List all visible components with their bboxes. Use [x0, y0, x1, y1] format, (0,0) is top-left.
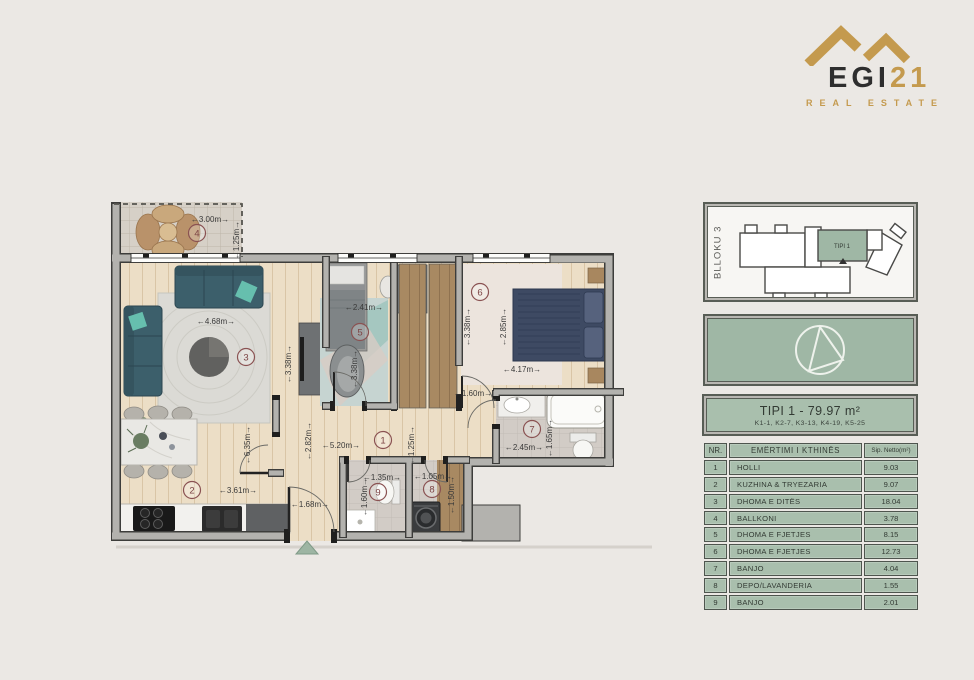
sofa-top: [175, 266, 263, 308]
row-nr: 9: [704, 595, 727, 610]
row-name: KUZHINA & TRYEZARIA: [729, 477, 862, 492]
dim-entry-w: ←1.68m→: [291, 500, 329, 509]
row-name: DHOMA E DITËS: [729, 494, 862, 509]
dim-hall-h: ←1.25m→: [407, 426, 416, 464]
floorplan-sheet: EGI21 REAL ESTATE: [0, 0, 974, 680]
dim-bath-w: ←2.45m→: [505, 443, 543, 452]
row-name: DEPO/LAVANDERIA: [729, 578, 862, 593]
dim-living-w: ←4.68m→: [197, 317, 235, 326]
room-area-table: NR. EMËRTIMI I KTHINËS Sip. Netto(m²) 1 …: [704, 443, 918, 612]
row-nr: 2: [704, 477, 727, 492]
table-row: 9 BANJO 2.01: [704, 595, 918, 610]
block-unit-label: TIPI 1: [834, 244, 851, 250]
type-title: TIPI 1 - 79.97 m²: [760, 404, 861, 418]
header-nr: NR.: [704, 443, 727, 458]
dim-wc9-h: ←1.60m→: [360, 478, 369, 516]
row-area: 3.78: [864, 511, 918, 526]
row-area: 4.04: [864, 561, 918, 576]
type-subtitle: K1-1, K2-7, K3-13, K4-19, K5-25: [755, 420, 866, 427]
row-nr: 8: [704, 578, 727, 593]
tv-console: [299, 323, 322, 395]
north-arrow-icon: [708, 319, 914, 382]
room-label-9: 9: [375, 487, 380, 498]
dim-kitchen-h: ←6.35m→: [243, 426, 252, 464]
window-room6: [473, 254, 550, 263]
room-label-1: 1: [380, 435, 385, 446]
dim-room5-w: ←2.41m→: [345, 303, 383, 312]
header-area: Sip. Netto(m²): [864, 443, 918, 458]
dim-room5-h: ←3.38m→: [350, 350, 359, 388]
room-label-8: 8: [429, 484, 434, 495]
dim-kitchen-w: ←3.61m→: [219, 486, 257, 495]
dim-bath-h: ←1.65m→: [545, 419, 554, 457]
table-row: 2 KUZHINA & TRYEZARIA 9.07: [704, 477, 918, 492]
bathtub: [547, 391, 609, 428]
dim-dep8-h: ←1.50m→: [447, 476, 456, 514]
table-header-row: NR. EMËRTIMI I KTHINËS Sip. Netto(m²): [704, 443, 918, 458]
cooktop: [133, 506, 175, 531]
row-area: 9.07: [864, 477, 918, 492]
table-row: 5 DHOMA E FJETJES 8.15: [704, 527, 918, 542]
kitchen-counter: [120, 504, 290, 533]
row-nr: 1: [704, 460, 727, 475]
row-nr: 3: [704, 494, 727, 509]
dim-room6-h-right: ←2.85m→: [499, 308, 508, 346]
block-outline-map: TIPI 1: [708, 207, 914, 298]
dim-balcony-w: ←3.00m→: [191, 215, 229, 224]
window-room5: [338, 254, 417, 263]
type-title-box: TIPI 1 - 79.97 m² K1-1, K2-7, K3-13, K4-…: [702, 394, 918, 436]
compass-box: [703, 314, 918, 386]
row-nr: 4: [704, 511, 727, 526]
nightstand: [588, 368, 606, 383]
room-label-3: 3: [243, 352, 248, 363]
block-inset-box: BLLOKU 3 TIPI 1: [703, 202, 918, 302]
double-bed: [513, 289, 605, 361]
row-nr: 5: [704, 527, 727, 542]
row-area: 18.04: [864, 494, 918, 509]
dim-hall-h2: ←2.82m→: [304, 422, 313, 460]
table-row: 3 DHOMA E DITËS 18.04: [704, 494, 918, 509]
room-label-2: 2: [189, 485, 194, 496]
row-area: 8.15: [864, 527, 918, 542]
nightstand: [588, 268, 606, 283]
table-row: 1 HOLLI 9.03: [704, 460, 918, 475]
windows: [131, 254, 550, 263]
header-name: EMËRTIMI I KTHINËS: [729, 443, 862, 458]
row-name: HOLLI: [729, 460, 862, 475]
row-area: 12.73: [864, 544, 918, 559]
row-name: BANJO: [729, 561, 862, 576]
dim-balcony-h: ←1.25m→: [232, 221, 241, 259]
dining-table: [121, 419, 197, 465]
laundry-8: [412, 502, 440, 533]
room-label-4: 4: [194, 228, 199, 239]
row-area: 2.01: [864, 595, 918, 610]
table-row: 7 BANJO 4.04: [704, 561, 918, 576]
row-nr: 6: [704, 544, 727, 559]
room-label-5: 5: [357, 327, 362, 338]
row-name: DHOMA E FJETJES: [729, 544, 862, 559]
table-row: 6 DHOMA E FJETJES 12.73: [704, 544, 918, 559]
dim-hall-w: ←5.20m→: [322, 441, 360, 450]
row-nr: 7: [704, 561, 727, 576]
row-area: 1.55: [864, 578, 918, 593]
row-name: BALLKONI: [729, 511, 862, 526]
row-name: BANJO: [729, 595, 862, 610]
room-label-7: 7: [529, 424, 534, 435]
table-row: 8 DEPO/LAVANDERIA 1.55: [704, 578, 918, 593]
dim-bath-entry: ←1.60m→: [454, 389, 492, 398]
dim-room6-h-left: ←3.38m→: [463, 308, 472, 346]
sofa-left: [124, 306, 162, 396]
window-living: [131, 254, 240, 263]
row-area: 9.03: [864, 460, 918, 475]
dim-living-h: ←3.38m→: [284, 345, 293, 383]
row-name: DHOMA E FJETJES: [729, 527, 862, 542]
table-row: 4 BALLKONI 3.78: [704, 511, 918, 526]
room-label-6: 6: [477, 287, 482, 298]
dim-room6-w: ←4.17m→: [503, 365, 541, 374]
